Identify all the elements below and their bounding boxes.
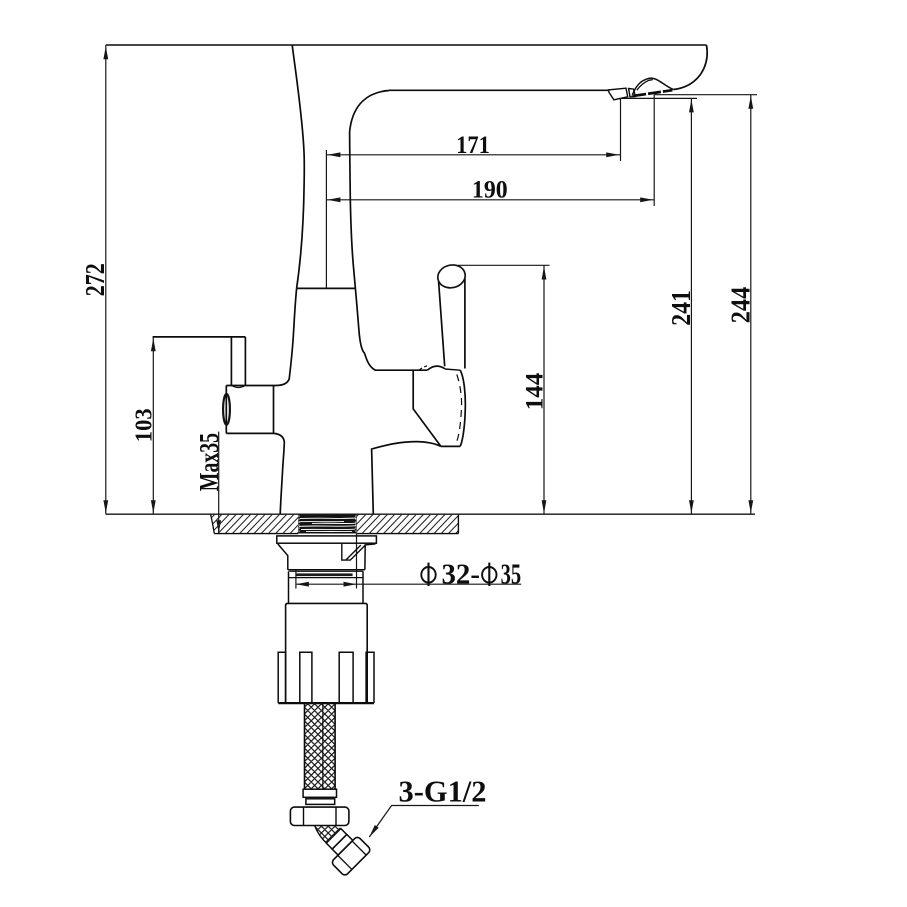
svg-text:244: 244 <box>724 287 755 324</box>
svg-text:144: 144 <box>521 372 548 410</box>
svg-text:Max35: Max35 <box>193 433 224 491</box>
svg-text:35: 35 <box>501 558 521 590</box>
svg-text:3-G1/2: 3-G1/2 <box>399 774 487 809</box>
svg-text:171: 171 <box>456 132 490 159</box>
svg-text:241: 241 <box>665 290 696 326</box>
svg-text:190: 190 <box>472 177 508 204</box>
svg-text:32-: 32- <box>442 558 481 590</box>
svg-text:103: 103 <box>131 408 157 442</box>
svg-text:272: 272 <box>79 263 110 296</box>
